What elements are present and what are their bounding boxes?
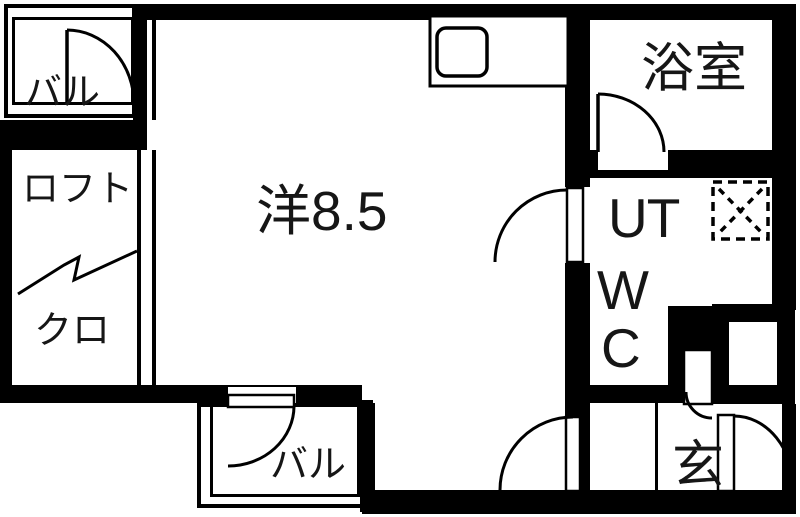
zigzag-break-line (18, 251, 137, 294)
room-label-balcony-bottom: バル (270, 446, 346, 484)
bath-door-arc (598, 94, 664, 152)
ut-door-leaf (567, 188, 583, 262)
room-label-bath: 浴室 (641, 42, 747, 95)
room-label-wc-c: C (601, 321, 641, 376)
room-label-loft: ロフト (22, 170, 133, 207)
room-label-utility: UT (608, 191, 679, 246)
room-label-entrance: 玄 (672, 440, 724, 492)
genkan-door-leaf (566, 417, 580, 491)
balcony-bottom-door-leaf (228, 395, 294, 407)
genkan-door-arc (500, 417, 573, 490)
wc-door-leaf (684, 350, 712, 404)
kitchen-sink-symbol (437, 28, 487, 76)
ut-door-arc (495, 190, 567, 262)
room-label-wc-w: W (597, 263, 649, 318)
room-label-balcony-top: バル (24, 74, 100, 112)
room-label-main: 洋8.5 (256, 184, 387, 239)
washing-machine-place-symbol (713, 182, 768, 239)
floorplan: バル ロフト クロ 洋8.5 浴室 UT W C 玄 バル (0, 0, 800, 517)
entrance-door-arc (734, 416, 794, 490)
room-label-closet: クロ (34, 312, 110, 350)
